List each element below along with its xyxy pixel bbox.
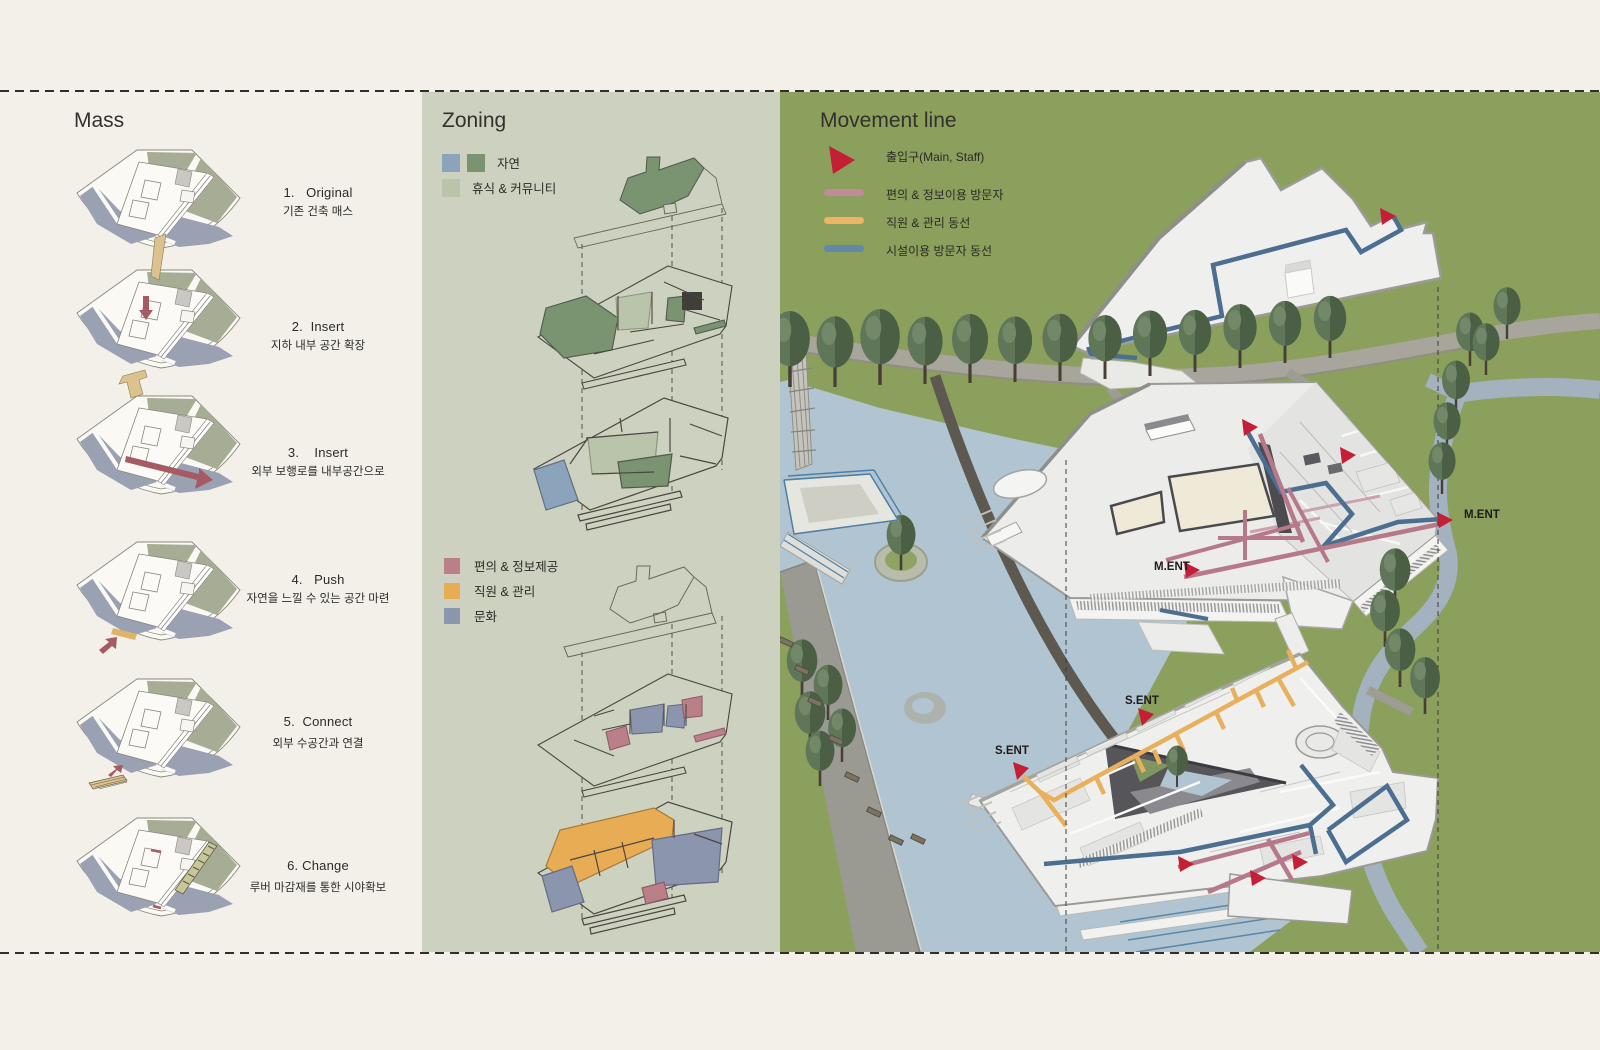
svg-text:출입구(Main, Staff): 출입구(Main, Staff) xyxy=(886,150,984,164)
svg-text:S.ENT: S.ENT xyxy=(1125,695,1159,707)
svg-text:문화: 문화 xyxy=(474,610,498,624)
svg-text:직원 & 관리 동선: 직원 & 관리 동선 xyxy=(886,216,970,230)
svg-text:시설이용 방문자 동선: 시설이용 방문자 동선 xyxy=(886,244,992,258)
svg-text:M.ENT: M.ENT xyxy=(1464,509,1500,521)
svg-text:편의 & 정보제공: 편의 & 정보제공 xyxy=(474,560,558,574)
svg-text:휴식 & 커뮤니티: 휴식 & 커뮤니티 xyxy=(472,182,556,196)
svg-text:S.ENT: S.ENT xyxy=(995,745,1029,757)
svg-text:자연: 자연 xyxy=(497,157,520,171)
svg-text:Movement line: Movement line xyxy=(820,109,957,132)
svg-text:M.ENT: M.ENT xyxy=(1154,561,1190,573)
svg-text:직원 & 관리: 직원 & 관리 xyxy=(474,585,535,599)
svg-text:편의 & 정보이용 방문자: 편의 & 정보이용 방문자 xyxy=(886,188,1003,202)
